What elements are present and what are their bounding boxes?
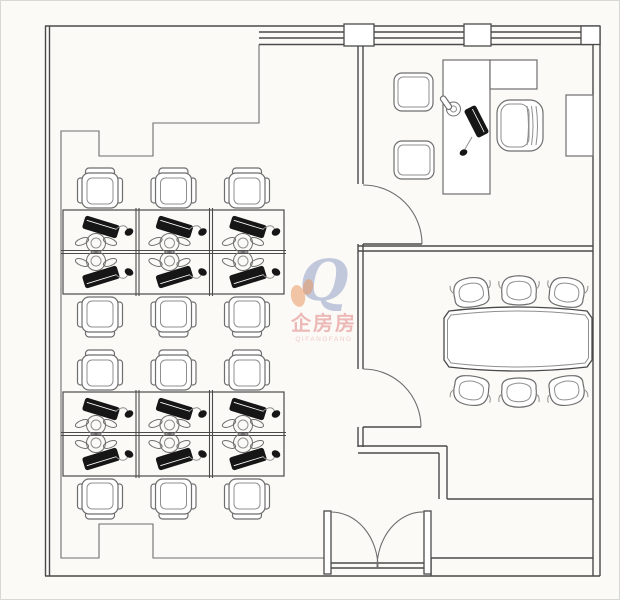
workstation-items <box>148 216 208 253</box>
workstation-items <box>221 252 281 289</box>
gadget-wing <box>148 236 163 247</box>
conference-chair <box>449 373 493 408</box>
window-corner-block <box>581 26 600 45</box>
workstation-chair <box>78 297 123 337</box>
workstation-chair <box>78 168 123 208</box>
gadget-inner <box>165 438 175 448</box>
door-jamb <box>324 511 331 574</box>
workstation-chair <box>151 168 196 208</box>
gadget-outer <box>87 416 106 435</box>
door-arc-conference <box>363 369 421 427</box>
mouse-icon <box>197 267 208 278</box>
workstation-chair <box>151 479 196 519</box>
mouse-icon <box>197 409 208 420</box>
mouse-icon <box>123 449 134 460</box>
workstation-items <box>221 216 281 253</box>
gadget-wing <box>148 439 163 450</box>
gadget-wing <box>221 236 236 247</box>
conference-chair <box>449 275 493 310</box>
gadget-inner <box>165 256 175 266</box>
workstation-items <box>148 252 208 289</box>
gadget-outer <box>87 252 106 271</box>
workstation-chair <box>78 350 123 390</box>
mouse-icon <box>270 267 281 278</box>
mouse-icon <box>270 409 281 420</box>
door-arc-office <box>363 185 422 244</box>
gadget-wing <box>74 439 89 450</box>
workstation-items <box>74 252 134 289</box>
gadget-wing <box>74 236 89 247</box>
conf-chair-back <box>452 275 490 309</box>
workstation-chair <box>151 350 196 390</box>
workstation-items <box>221 434 281 471</box>
gadget-inner <box>238 438 248 448</box>
mouse-icon <box>197 449 208 460</box>
conf-chair-back <box>452 374 490 408</box>
floor-plan-svg <box>1 1 619 599</box>
gadget-inner <box>91 420 101 430</box>
gadget-outer <box>234 434 253 453</box>
gadget-inner <box>91 438 101 448</box>
conference-chair <box>499 378 539 407</box>
mouse-icon <box>270 449 281 460</box>
workstation-chair <box>225 297 270 337</box>
conference-chair <box>545 373 589 408</box>
gadget-outer <box>160 234 179 253</box>
door-arc-entry-left <box>331 512 378 568</box>
gadget-wing <box>221 257 236 268</box>
workstation-items <box>74 398 134 435</box>
door-arc-entry-right <box>377 512 424 568</box>
gadget-inner <box>165 238 175 248</box>
workstation-chair <box>225 479 270 519</box>
floor-plan-image: Q 企房房 QIFANGFANG <box>0 0 620 600</box>
cabinet <box>566 95 593 156</box>
door-jamb <box>424 511 431 574</box>
workstation-items <box>74 434 134 471</box>
gadget-inner <box>91 256 101 266</box>
mouse-icon <box>123 409 134 420</box>
gadget-outer <box>160 252 179 271</box>
workstation-items <box>148 434 208 471</box>
gadget-inner <box>91 238 101 248</box>
conference-table <box>444 307 592 371</box>
gadget-wing <box>74 257 89 268</box>
visitor-chair <box>394 141 434 179</box>
gadget-outer <box>87 234 106 253</box>
workstation-chair <box>225 350 270 390</box>
gadget-wing <box>221 439 236 450</box>
gadget-outer <box>160 434 179 453</box>
mouse-icon <box>197 227 208 238</box>
gadget-outer <box>234 252 253 271</box>
gadget-inner <box>165 420 175 430</box>
visitor-chair-outer <box>394 141 434 179</box>
gadget-wing <box>74 418 89 429</box>
conf-chair-back <box>548 275 586 309</box>
workstation-items <box>148 398 208 435</box>
conf-chair-back <box>548 374 586 408</box>
mouse-icon <box>123 227 134 238</box>
workstation-items <box>74 216 134 253</box>
workstation-items <box>221 398 281 435</box>
gadget-inner <box>238 256 248 266</box>
gadget-outer <box>160 416 179 435</box>
gadget-wing <box>221 418 236 429</box>
gadget-wing <box>148 418 163 429</box>
mouse-icon <box>123 267 134 278</box>
workstation-chair <box>225 168 270 208</box>
mouse-icon <box>270 227 281 238</box>
gadget-inner <box>238 238 248 248</box>
conference-chair <box>545 275 589 310</box>
gadget-wing <box>148 257 163 268</box>
window-mullion <box>344 24 374 46</box>
conference-chair <box>499 276 539 305</box>
executive-chair <box>497 100 543 151</box>
workstation-chair <box>151 297 196 337</box>
gadget-outer <box>87 434 106 453</box>
visitor-chair <box>394 73 433 111</box>
executive-desk-return <box>490 60 537 89</box>
window-mullion <box>464 24 491 46</box>
gadget-outer <box>234 416 253 435</box>
gadget-inner <box>238 420 248 430</box>
workstation-chair <box>78 479 123 519</box>
gadget-outer <box>234 234 253 253</box>
